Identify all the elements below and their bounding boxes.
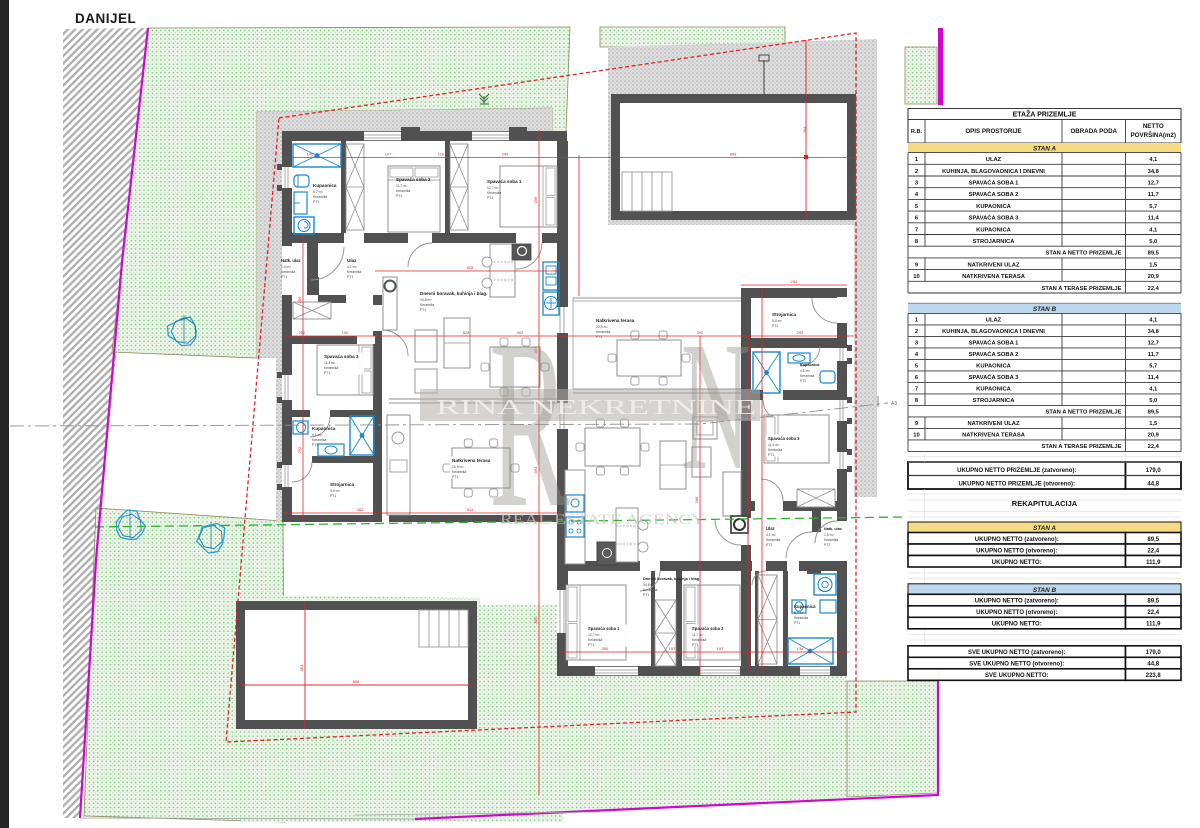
svg-text:UKUPNO NETTO PRIZEMLJE (otvore: UKUPNO NETTO PRIZEMLJE (otvoreno): — [958, 482, 1075, 488]
svg-text:89,5: 89,5 — [1147, 599, 1159, 605]
svg-text:22,4: 22,4 — [1147, 548, 1159, 554]
svg-text:134: 134 — [797, 646, 804, 651]
svg-text:REAL ESTATE AGENCY: REAL ESTATE AGENCY — [500, 512, 705, 528]
svg-text:R.B.: R.B. — [911, 129, 923, 135]
svg-text:SPAVAĆA SOBA 1: SPAVAĆA SOBA 1 — [969, 339, 1020, 347]
svg-text:11,4: 11,4 — [1148, 216, 1160, 222]
svg-text:292: 292 — [797, 330, 804, 335]
svg-text:SPAVAĆA SOBA 3: SPAVAĆA SOBA 3 — [969, 373, 1020, 381]
svg-text:PT1: PT1 — [692, 643, 698, 647]
svg-text:4,1 m²: 4,1 m² — [347, 265, 357, 269]
svg-text:100: 100 — [342, 330, 349, 335]
svg-text:11,4 m²: 11,4 m² — [768, 443, 780, 447]
svg-text:89,5: 89,5 — [1148, 251, 1160, 257]
svg-text:4,1 m²: 4,1 m² — [766, 533, 776, 537]
svg-text:282: 282 — [299, 330, 306, 335]
svg-text:295: 295 — [533, 196, 538, 203]
svg-text:SVE UKUPNO NETTO (zatvoreno):: SVE UKUPNO NETTO (zatvoreno): — [968, 650, 1066, 656]
svg-text:11,7 m²: 11,7 m² — [692, 633, 704, 637]
svg-text:89,5: 89,5 — [1147, 537, 1159, 543]
svg-text:1,5: 1,5 — [1149, 421, 1158, 427]
svg-text:Natkrivena terasa: Natkrivena terasa — [596, 318, 635, 323]
svg-text:SVE UKUPNO NETTO:: SVE UKUPNO NETTO: — [985, 673, 1049, 679]
svg-text:STAN B: STAN B — [1033, 306, 1057, 313]
svg-text:107: 107 — [385, 152, 392, 157]
svg-text:44,8: 44,8 — [1147, 662, 1159, 668]
svg-text:5,7: 5,7 — [1149, 204, 1157, 210]
svg-text:Keramika: Keramika — [692, 638, 706, 642]
svg-text:SPAVAĆA SOBA 1: SPAVAĆA SOBA 1 — [969, 179, 1020, 187]
svg-text:KUPAONICA: KUPAONICA — [976, 364, 1011, 370]
svg-text:223,8: 223,8 — [1146, 673, 1162, 679]
svg-text:22,4: 22,4 — [1148, 286, 1160, 292]
svg-text:Natk. ulaz: Natk. ulaz — [824, 527, 842, 531]
svg-text:Spavaća soba 1: Spavaća soba 1 — [588, 626, 620, 631]
svg-text:10: 10 — [913, 433, 919, 439]
svg-text:PT1: PT1 — [330, 494, 336, 498]
svg-text:UKUPNO NETTO (otvoreno):: UKUPNO NETTO (otvoreno): — [976, 548, 1057, 554]
svg-text:KUPAONICA: KUPAONICA — [976, 387, 1011, 393]
svg-text:KUHINJA, BLAGOVAONICA I DNEVNI: KUHINJA, BLAGOVAONICA I DNEVNI — [942, 169, 1045, 175]
svg-text:UKUPNO NETTO PRIZEMLJE (zatvor: UKUPNO NETTO PRIZEMLJE (zatvoreno): — [957, 468, 1076, 474]
svg-text:364: 364 — [802, 126, 807, 133]
svg-text:PT1: PT1 — [772, 324, 778, 328]
svg-text:12,7 m²: 12,7 m² — [487, 186, 499, 190]
svg-text:179,0: 179,0 — [1146, 650, 1162, 656]
svg-text:Keramika: Keramika — [312, 438, 326, 442]
svg-text:11,4: 11,4 — [1148, 375, 1160, 381]
svg-text:4,1: 4,1 — [1149, 318, 1158, 324]
svg-text:PT1: PT1 — [588, 643, 594, 647]
svg-text:Keramika: Keramika — [487, 191, 501, 195]
svg-text:1,5 m²: 1,5 m² — [281, 265, 291, 269]
svg-text:STAN A: STAN A — [1033, 146, 1056, 153]
svg-text:ULAZ: ULAZ — [986, 157, 1002, 163]
svg-text:POVRŠINA(m2): POVRŠINA(m2) — [1131, 131, 1176, 139]
svg-text:Keramika: Keramika — [596, 330, 610, 334]
svg-text:SPAVAĆA SOBA 3: SPAVAĆA SOBA 3 — [969, 214, 1020, 222]
svg-text:5,0 m²: 5,0 m² — [772, 319, 782, 323]
svg-text:PT1: PT1 — [824, 543, 830, 547]
svg-text:4,1: 4,1 — [1149, 157, 1158, 163]
svg-text:PT1: PT1 — [347, 275, 353, 279]
svg-text:Kupaonica: Kupaonica — [794, 604, 816, 609]
svg-text:12,7: 12,7 — [1148, 181, 1159, 187]
svg-text:179,0: 179,0 — [1146, 468, 1162, 474]
svg-text:511: 511 — [467, 507, 474, 512]
svg-text:89,5: 89,5 — [1148, 410, 1160, 416]
svg-text:STAN A: STAN A — [1033, 525, 1056, 532]
svg-text:1,5 m²: 1,5 m² — [824, 533, 834, 537]
svg-text:282: 282 — [357, 507, 364, 512]
svg-text:146: 146 — [307, 152, 314, 157]
svg-text:116: 116 — [438, 152, 445, 157]
svg-text:UKUPNO NETTO:: UKUPNO NETTO: — [992, 622, 1042, 628]
svg-text:1,5: 1,5 — [1149, 262, 1158, 268]
svg-text:Keramika: Keramika — [396, 189, 410, 193]
svg-text:NATKRIVENI ULAZ: NATKRIVENI ULAZ — [967, 421, 1020, 427]
svg-text:5,0: 5,0 — [1149, 398, 1157, 404]
svg-text:850: 850 — [533, 616, 538, 623]
svg-text:Kupaonica: Kupaonica — [312, 426, 336, 431]
svg-text:Spavaća soba 3: Spavaća soba 3 — [768, 436, 800, 441]
svg-text:Spavaća soba 1: Spavaća soba 1 — [487, 179, 522, 184]
svg-text:ETAŽA PRIZEMLJE: ETAŽA PRIZEMLJE — [1013, 110, 1077, 119]
svg-text:359: 359 — [602, 646, 609, 651]
svg-text:11,7: 11,7 — [1148, 192, 1159, 198]
svg-text:PT1: PT1 — [396, 194, 402, 198]
svg-text:Keramika: Keramika — [643, 588, 657, 592]
svg-text:7: 7 — [915, 227, 918, 233]
svg-text:4,1: 4,1 — [1149, 227, 1158, 233]
svg-text:STROJARNICA: STROJARNICA — [973, 239, 1016, 245]
svg-text:5,7: 5,7 — [1149, 364, 1157, 370]
svg-text:Keramika: Keramika — [313, 195, 327, 199]
svg-text:Keramika: Keramika — [452, 470, 466, 474]
svg-text:10: 10 — [913, 274, 919, 280]
svg-text:NATKRIVENA TERASA: NATKRIVENA TERASA — [962, 274, 1026, 280]
svg-text:4,1 m²: 4,1 m² — [312, 433, 322, 437]
svg-text:STAN B: STAN B — [1033, 587, 1057, 594]
svg-text:KUHINJA, BLAGOVAONICA I DNEVNI: KUHINJA, BLAGOVAONICA I DNEVNI — [942, 329, 1045, 335]
svg-text:828: 828 — [463, 330, 470, 335]
svg-text:2: 2 — [915, 329, 918, 335]
svg-text:5,7 m²: 5,7 m² — [313, 190, 323, 194]
svg-text:PT1: PT1 — [643, 593, 649, 597]
svg-text:STAN A NETTO PRIZEMLJE: STAN A NETTO PRIZEMLJE — [1045, 410, 1121, 416]
svg-text:A3: A3 — [891, 401, 897, 407]
svg-text:PT1: PT1 — [312, 443, 318, 447]
svg-text:Keramika: Keramika — [588, 638, 602, 642]
svg-text:Ulaz: Ulaz — [347, 258, 357, 263]
svg-text:UKUPNO NETTO:: UKUPNO NETTO: — [992, 560, 1042, 566]
svg-text:Natk. ulaz: Natk. ulaz — [281, 258, 301, 263]
svg-text:12,7 m²: 12,7 m² — [588, 633, 600, 637]
svg-text:5,0: 5,0 — [1149, 239, 1157, 245]
svg-text:Keramika: Keramika — [281, 270, 295, 274]
svg-text:PT1: PT1 — [800, 379, 806, 383]
svg-text:Natkrivena terasa: Natkrivena terasa — [452, 458, 491, 463]
svg-text:12,7: 12,7 — [1148, 341, 1159, 347]
svg-text:NATKRIVENA TERASA: NATKRIVENA TERASA — [962, 433, 1026, 439]
svg-text:PT1: PT1 — [420, 308, 426, 312]
svg-text:Kupaonica: Kupaonica — [800, 363, 820, 367]
svg-text:PT1: PT1 — [452, 475, 458, 479]
svg-text:828: 828 — [467, 265, 474, 270]
svg-text:OPIS PROSTORIJE: OPIS PROSTORIJE — [965, 128, 1021, 135]
svg-text:111,9: 111,9 — [1146, 560, 1161, 566]
svg-text:20,9: 20,9 — [1148, 433, 1160, 439]
svg-text:286: 286 — [297, 296, 302, 303]
svg-text:Keramika: Keramika — [324, 366, 338, 370]
svg-text:858: 858 — [353, 679, 360, 684]
svg-text:11,7: 11,7 — [1148, 352, 1159, 358]
svg-text:Kupaonica: Kupaonica — [313, 183, 337, 188]
svg-text:KUPAONICA: KUPAONICA — [976, 227, 1011, 233]
svg-text:Strojarnica: Strojarnica — [330, 482, 354, 487]
svg-text:Keramika: Keramika — [800, 374, 814, 378]
svg-text:PT1: PT1 — [313, 200, 319, 204]
svg-text:OBRADA PODA: OBRADA PODA — [1070, 128, 1117, 135]
svg-text:22,4: 22,4 — [1147, 610, 1159, 616]
svg-text:NETTO: NETTO — [1143, 123, 1164, 130]
svg-text:4,1 m²: 4,1 m² — [800, 369, 810, 373]
svg-text:SPAVAĆA SOBA 2: SPAVAĆA SOBA 2 — [969, 350, 1019, 358]
svg-text:UKUPNO NETTO (zatvoreno):: UKUPNO NETTO (zatvoreno): — [975, 537, 1059, 543]
svg-text:STROJARNICA: STROJARNICA — [973, 398, 1016, 404]
svg-text:7: 7 — [915, 387, 918, 393]
svg-text:Keramika: Keramika — [347, 270, 361, 274]
svg-text:Spavaća soba 3: Spavaća soba 3 — [324, 354, 359, 359]
svg-text:STAN A NETTO PRIZEMLJE: STAN A NETTO PRIZEMLJE — [1045, 251, 1121, 257]
svg-text:SVE UKUPNO NETTO (otvoreno):: SVE UKUPNO NETTO (otvoreno): — [969, 662, 1064, 668]
svg-text:20,9 m²: 20,9 m² — [452, 465, 464, 469]
svg-text:292: 292 — [791, 279, 798, 284]
svg-text:5,0 m²: 5,0 m² — [330, 489, 340, 493]
svg-text:Keramika: Keramika — [794, 616, 808, 620]
svg-text:Keramika: Keramika — [420, 303, 434, 307]
svg-text:Dnevni boravak, kuhinja i blag: Dnevni boravak, kuhinja i blag. — [643, 576, 700, 581]
svg-text:STAN A TERASE PRIZEMLJE: STAN A TERASE PRIZEMLJE — [1042, 444, 1122, 450]
svg-text:PT1: PT1 — [768, 453, 774, 457]
svg-text:197: 197 — [717, 646, 724, 651]
svg-text:364: 364 — [299, 664, 304, 671]
svg-text:20,9 m²: 20,9 m² — [596, 325, 608, 329]
svg-text:PT1: PT1 — [794, 621, 800, 625]
svg-text:34,8 m²: 34,8 m² — [420, 298, 432, 302]
svg-text:UKUPNO NETTO (otvoreno):: UKUPNO NETTO (otvoreno): — [976, 610, 1057, 616]
svg-text:Strojarnica: Strojarnica — [772, 312, 796, 317]
svg-text:20,9: 20,9 — [1148, 274, 1160, 280]
svg-text:SPAVAĆA SOBA 2: SPAVAĆA SOBA 2 — [969, 190, 1019, 198]
svg-text:PT1: PT1 — [766, 543, 772, 547]
svg-text:22,4: 22,4 — [1148, 444, 1160, 450]
svg-text:Spavaća soba 2: Spavaća soba 2 — [396, 177, 431, 182]
svg-text:157: 157 — [669, 646, 676, 651]
svg-text:34,8: 34,8 — [1148, 329, 1160, 335]
svg-text:Dnevni boravak, kuhinja i blag: Dnevni boravak, kuhinja i blag. — [420, 291, 487, 296]
svg-text:Keramika: Keramika — [824, 538, 838, 542]
svg-text:DANIJEL: DANIJEL — [75, 11, 136, 26]
svg-text:858: 858 — [730, 152, 737, 157]
svg-text:STAN A TERASE PRIZEMLJE: STAN A TERASE PRIZEMLJE — [1042, 286, 1122, 292]
svg-text:Keramika: Keramika — [768, 448, 782, 452]
svg-text:34,8: 34,8 — [1148, 169, 1160, 175]
svg-text:5,7 m²: 5,7 m² — [794, 611, 804, 615]
svg-text:PT1: PT1 — [324, 371, 330, 375]
svg-text:111,9: 111,9 — [1146, 622, 1161, 628]
svg-text:4,1: 4,1 — [1149, 387, 1158, 393]
svg-text:KUPAONICA: KUPAONICA — [976, 204, 1011, 210]
svg-text:PT1: PT1 — [487, 196, 493, 200]
svg-text:11,7 m²: 11,7 m² — [396, 184, 408, 188]
svg-text:UKUPNO NETTO (zatvoreno):: UKUPNO NETTO (zatvoreno): — [975, 599, 1059, 605]
svg-text:Spavaća soba 2: Spavaća soba 2 — [692, 626, 724, 631]
svg-text:44,8: 44,8 — [1147, 482, 1159, 488]
svg-text:REKAPITULACIJA: REKAPITULACIJA — [1012, 499, 1078, 508]
svg-text:34,8 m²: 34,8 m² — [643, 583, 655, 587]
svg-text:PT1: PT1 — [281, 275, 287, 279]
svg-text:ULAZ: ULAZ — [986, 318, 1002, 324]
svg-text:11,4 m²: 11,4 m² — [324, 361, 336, 365]
svg-text:292: 292 — [297, 446, 302, 453]
svg-text:Keramika: Keramika — [766, 538, 780, 542]
svg-text:2: 2 — [915, 169, 918, 175]
svg-text:NATKRIVENI ULAZ: NATKRIVENI ULAZ — [967, 262, 1020, 268]
svg-text:Ulaz: Ulaz — [766, 526, 775, 531]
svg-text:RINA NEKRETNINE: RINA NEKRETNINE — [436, 395, 756, 419]
svg-text:248: 248 — [502, 152, 509, 157]
